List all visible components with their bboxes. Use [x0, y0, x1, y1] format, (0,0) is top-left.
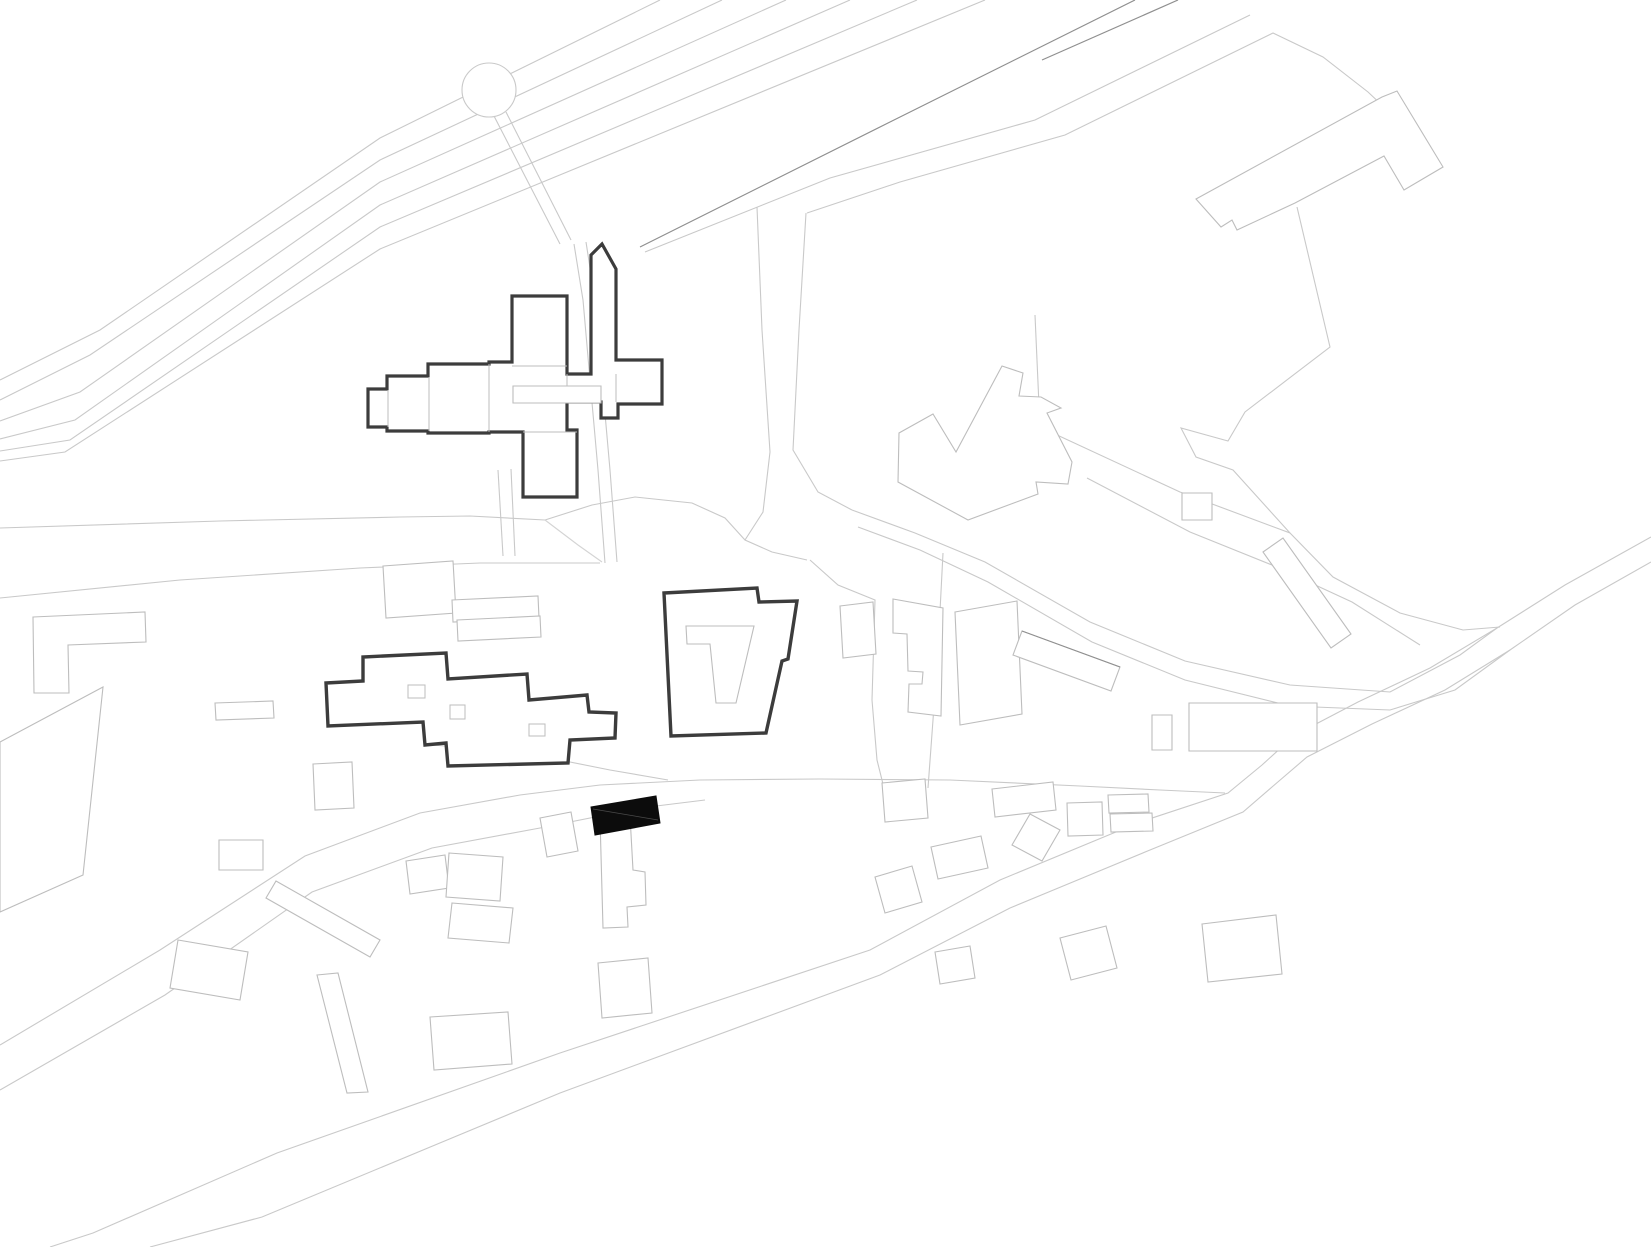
cross-street-west-edge	[810, 560, 884, 788]
church-south-path-west	[498, 470, 503, 556]
village-e-10	[1202, 915, 1282, 982]
village-e-11	[935, 946, 975, 984]
village-e-5	[1110, 813, 1153, 832]
village-w-3	[448, 903, 513, 943]
village-w-1	[406, 855, 449, 894]
west-road-upper	[0, 516, 545, 528]
building-small-rect-east	[1152, 715, 1172, 750]
building-small-rect-2	[219, 840, 263, 870]
building-stepped-midcluster	[893, 599, 943, 716]
building-thin-rect-west	[215, 701, 274, 720]
building-parallelogram-midcluster	[955, 601, 1022, 725]
west-road-lower	[0, 563, 600, 598]
railway-dark-line-2	[1042, 0, 1178, 60]
village-e-2	[992, 782, 1056, 817]
site-building-footprint	[591, 796, 660, 835]
street-east-edge	[793, 213, 852, 510]
stepped-building-outline	[326, 653, 616, 766]
building-rect-midcluster	[840, 602, 876, 658]
village-w-10	[598, 958, 652, 1018]
park-road-south	[1087, 478, 1420, 645]
mast-path-east	[506, 112, 571, 240]
building-l-shape-west	[33, 612, 146, 693]
building-rect-c	[457, 616, 541, 641]
building-park-bar	[1263, 538, 1351, 648]
west-road-upper-around-pentagon	[545, 497, 807, 560]
village-w-8-sliver	[317, 973, 368, 1093]
corridor-road-north	[645, 15, 1250, 252]
railway-dark-line-1	[640, 0, 1135, 247]
building-small-rect-1	[313, 762, 354, 810]
village-e-1	[882, 779, 928, 822]
railway-line-4	[0, 0, 850, 439]
church-complex-outline	[368, 244, 662, 497]
village-w-2	[446, 853, 503, 901]
site-plan	[0, 0, 1651, 1247]
village-e-7	[931, 836, 988, 879]
park-zigzag-boundary	[1181, 207, 1330, 533]
plaza-road-se-north	[852, 510, 1497, 692]
site-plan-page	[0, 0, 1651, 1247]
turning-circle	[462, 63, 516, 117]
village-e-6	[1012, 814, 1060, 861]
building-rect-a	[383, 561, 456, 618]
west-road-fork	[545, 520, 602, 562]
stepped-inner-square-3	[529, 724, 545, 736]
village-w-6	[170, 940, 248, 1000]
village-e-8	[875, 866, 922, 913]
village-e-9	[1060, 926, 1117, 980]
building-complex-northeast	[898, 366, 1072, 520]
mast-path-west	[494, 116, 560, 244]
railway-line-3	[0, 0, 786, 421]
site-building	[591, 796, 660, 835]
village-w-7-bar	[266, 881, 380, 957]
building-park-square	[1182, 493, 1212, 520]
building-large-quad-southwest	[0, 687, 103, 912]
stepped-inner-square-1	[408, 685, 425, 698]
park-road-north	[1042, 428, 1500, 630]
street-west-edge	[745, 207, 770, 540]
village-w-9	[430, 1012, 512, 1070]
church-corridor-rect	[513, 386, 601, 403]
building-big-rect-east	[1189, 703, 1317, 751]
village-w-4	[540, 812, 578, 857]
stepped-inner-square-2	[450, 705, 465, 719]
building-bar-with-foot-topright	[1196, 91, 1443, 230]
village-e-3	[1067, 802, 1103, 836]
church-south-path-east	[511, 469, 515, 556]
village-e-4	[1108, 794, 1149, 813]
